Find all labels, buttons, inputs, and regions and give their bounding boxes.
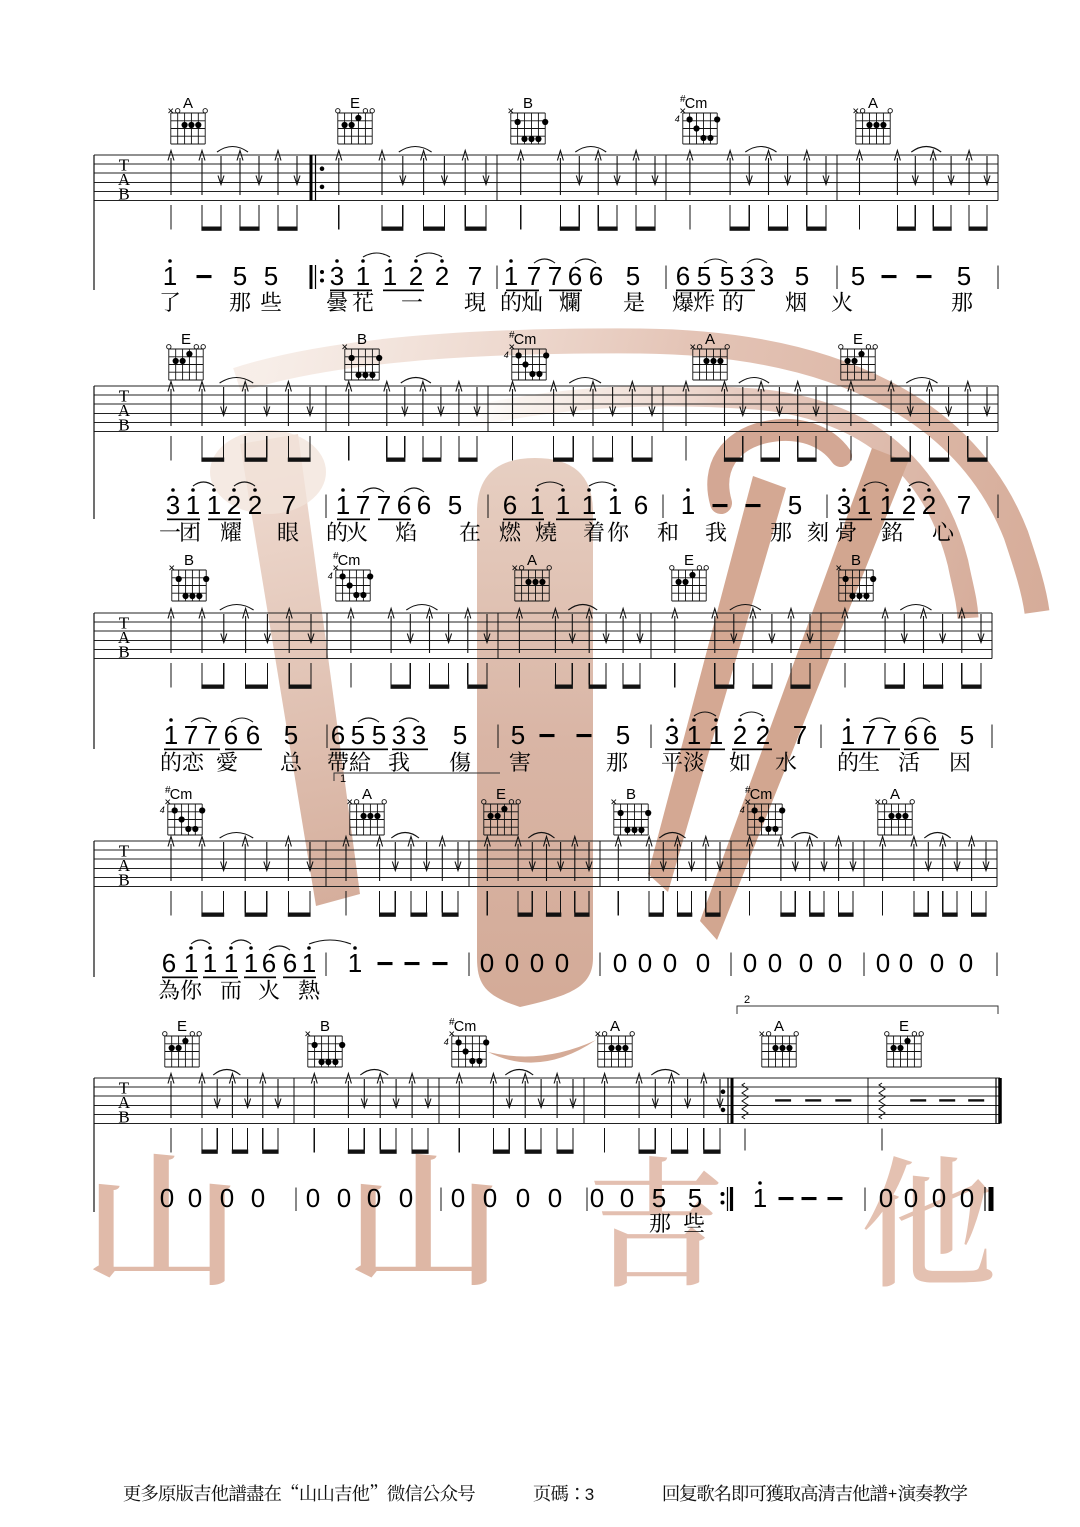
svg-text:0: 0 [220,1183,234,1213]
svg-text:5: 5 [795,261,809,291]
svg-text:B: B [851,552,861,569]
svg-text:B: B [320,1018,330,1035]
svg-text:5: 5 [652,1183,666,1213]
svg-text:B: B [357,331,367,348]
svg-text:B: B [118,185,129,204]
svg-text:5: 5 [511,720,525,750]
svg-text:5: 5 [284,720,298,750]
svg-text:A: A [610,1018,620,1035]
svg-text:A: A [362,786,372,803]
svg-text:7: 7 [527,261,541,291]
svg-text:#: # [745,785,751,796]
svg-text:5: 5 [957,261,971,291]
svg-text:3: 3 [330,261,344,291]
svg-text:Cm: Cm [170,787,193,803]
svg-text:6: 6 [224,720,238,750]
svg-text:5: 5 [960,720,974,750]
svg-text:5: 5 [788,490,802,520]
svg-text:7: 7 [548,261,562,291]
svg-text:7: 7 [793,720,807,750]
svg-text:6: 6 [923,720,937,750]
svg-text:1: 1 [753,1183,767,1213]
svg-text:0: 0 [663,948,677,978]
svg-text:1: 1 [184,948,198,978]
svg-text:1: 1 [336,490,350,520]
svg-text:1: 1 [608,490,622,520]
svg-text:Cm: Cm [454,1019,477,1035]
svg-text:0: 0 [960,1183,974,1213]
svg-text:E: E [177,1018,187,1035]
svg-text:#: # [333,551,339,562]
svg-text:A: A [774,1018,784,1035]
svg-text:2: 2 [409,261,423,291]
svg-text:0: 0 [251,1183,265,1213]
svg-text:1: 1 [556,490,570,520]
svg-text:B: B [626,786,636,803]
svg-text:1: 1 [841,720,855,750]
svg-text:6: 6 [283,948,297,978]
svg-text:E: E [853,331,863,348]
svg-text:5: 5 [453,720,467,750]
svg-text:B: B [184,552,194,569]
svg-text:B: B [118,643,129,662]
svg-text:0: 0 [480,948,494,978]
svg-text:0: 0 [451,1183,465,1213]
svg-text:1: 1 [302,948,316,978]
svg-text:4: 4 [444,1037,449,1047]
svg-text:1: 1 [186,490,200,520]
svg-text:6: 6 [503,490,517,520]
svg-text:7: 7 [862,720,876,750]
svg-text:0: 0 [367,1183,381,1213]
svg-text:3: 3 [166,490,180,520]
svg-text:Cm: Cm [514,332,537,348]
svg-text:0: 0 [799,948,813,978]
svg-text:0: 0 [555,948,569,978]
svg-text:0: 0 [620,1183,634,1213]
svg-text:5: 5 [688,1183,702,1213]
svg-text:6: 6 [589,261,603,291]
svg-text:B: B [118,871,129,890]
svg-text:0: 0 [483,1183,497,1213]
svg-text:3: 3 [665,720,679,750]
svg-text:1: 1 [356,261,370,291]
svg-text:1: 1 [880,490,894,520]
svg-text:0: 0 [828,948,842,978]
svg-text:1: 1 [582,490,596,520]
svg-text:6: 6 [904,720,918,750]
svg-text:7: 7 [184,720,198,750]
svg-text:5: 5 [351,720,365,750]
svg-text:0: 0 [590,1183,604,1213]
svg-text:5: 5 [697,261,711,291]
svg-text:4: 4 [504,350,509,360]
svg-text:2: 2 [248,490,262,520]
svg-text:0: 0 [930,948,944,978]
svg-text:B: B [118,416,129,435]
svg-text:0: 0 [530,948,544,978]
svg-text:6: 6 [634,490,648,520]
svg-text:5: 5 [851,261,865,291]
svg-text:6: 6 [331,720,345,750]
svg-text:7: 7 [468,261,482,291]
svg-text:1: 1 [244,948,258,978]
svg-text:5: 5 [626,261,640,291]
svg-text:0: 0 [188,1183,202,1213]
svg-text:6: 6 [262,948,276,978]
svg-text:A: A [183,95,193,112]
svg-text:0: 0 [768,948,782,978]
svg-text:1: 1 [207,490,221,520]
svg-text:4: 4 [160,805,165,815]
svg-text:6: 6 [417,490,431,520]
svg-text:5: 5 [720,261,734,291]
svg-text:4: 4 [328,571,333,581]
svg-text:#: # [680,94,686,105]
svg-text:Cm: Cm [338,553,361,569]
svg-text:E: E [899,1018,909,1035]
svg-text:E: E [496,786,506,803]
svg-text:6: 6 [397,490,411,520]
svg-text:Cm: Cm [750,787,773,803]
svg-text:A: A [705,331,715,348]
svg-text:+: + [888,1486,897,1503]
svg-text:1: 1 [348,948,362,978]
svg-text:0: 0 [306,1183,320,1213]
svg-text:0: 0 [613,948,627,978]
svg-text:3: 3 [760,261,774,291]
svg-text:0: 0 [548,1183,562,1213]
svg-text:6: 6 [568,261,582,291]
svg-text:0: 0 [743,948,757,978]
svg-text:0: 0 [932,1183,946,1213]
svg-text:0: 0 [696,948,710,978]
svg-text:1: 1 [709,720,723,750]
svg-text:B: B [118,1108,129,1127]
svg-text:6: 6 [162,948,176,978]
svg-text:4: 4 [740,805,745,815]
svg-text:3: 3 [740,261,754,291]
svg-text:0: 0 [899,948,913,978]
svg-text:B: B [523,95,533,112]
svg-text:6: 6 [676,261,690,291]
svg-text:0: 0 [904,1183,918,1213]
svg-text:0: 0 [879,1183,893,1213]
svg-text:0: 0 [337,1183,351,1213]
svg-text:4: 4 [675,114,680,124]
svg-text:0: 0 [876,948,890,978]
svg-text:2: 2 [902,490,916,520]
svg-text:3: 3 [412,720,426,750]
svg-text:#: # [165,785,171,796]
svg-text:7: 7 [204,720,218,750]
svg-text:5: 5 [448,490,462,520]
svg-text:1: 1 [687,720,701,750]
svg-text:Cm: Cm [685,96,708,112]
svg-text:0: 0 [399,1183,413,1213]
svg-text:1: 1 [224,948,238,978]
svg-text:5: 5 [264,261,278,291]
svg-text:0: 0 [505,948,519,978]
svg-text:7: 7 [883,720,897,750]
svg-text:2: 2 [227,490,241,520]
svg-text:2: 2 [733,720,747,750]
svg-text:A: A [527,552,537,569]
svg-text:A: A [868,95,878,112]
svg-text:1: 1 [203,948,217,978]
svg-text:2: 2 [435,261,449,291]
svg-text:1: 1 [681,490,695,520]
svg-text:3: 3 [392,720,406,750]
svg-text:1: 1 [164,720,178,750]
svg-text:1: 1 [163,261,177,291]
svg-text:5: 5 [372,720,386,750]
svg-text:#: # [449,1017,455,1028]
svg-text:E: E [684,552,694,569]
svg-text:5: 5 [233,261,247,291]
svg-text:2: 2 [756,720,770,750]
svg-text:1: 1 [504,261,518,291]
svg-text:0: 0 [959,948,973,978]
svg-text:7: 7 [356,490,370,520]
svg-text:1: 1 [530,490,544,520]
svg-text:7: 7 [282,490,296,520]
svg-text:3: 3 [585,1485,594,1504]
svg-text:2: 2 [744,994,750,1006]
svg-text:A: A [890,786,900,803]
svg-text:0: 0 [160,1183,174,1213]
svg-text:0: 0 [516,1183,530,1213]
svg-text:6: 6 [246,720,260,750]
svg-text:7: 7 [957,490,971,520]
svg-text:1: 1 [340,773,346,785]
svg-text:#: # [509,330,515,341]
svg-text:2: 2 [922,490,936,520]
svg-text:3: 3 [837,490,851,520]
svg-text:0: 0 [638,948,652,978]
svg-text:5: 5 [616,720,630,750]
svg-text:7: 7 [377,490,391,520]
svg-text:E: E [181,331,191,348]
svg-text:1: 1 [857,490,871,520]
svg-text:1: 1 [383,261,397,291]
svg-text:E: E [350,95,360,112]
